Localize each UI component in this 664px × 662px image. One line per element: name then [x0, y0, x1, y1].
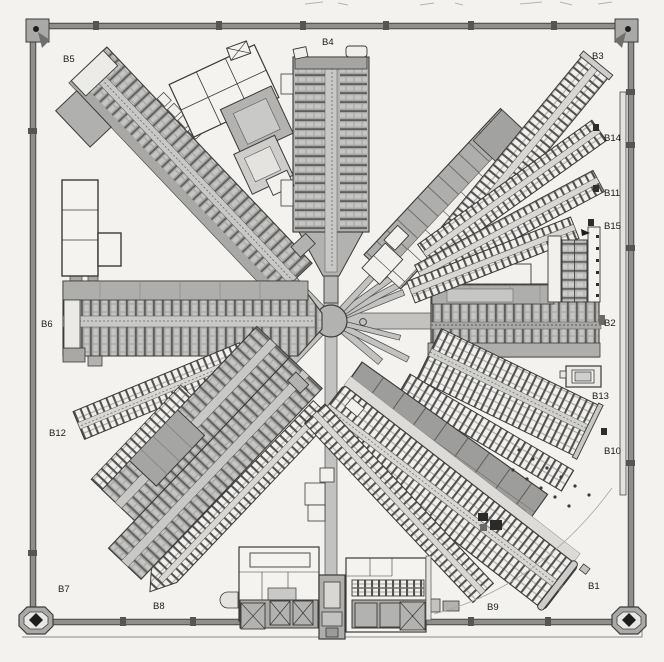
svg-text:B11: B11 — [604, 188, 620, 199]
svg-text:B8: B8 — [153, 601, 165, 612]
svg-text:B2: B2 — [604, 318, 616, 329]
svg-text:B12: B12 — [49, 428, 66, 439]
svg-text:B5: B5 — [63, 54, 75, 65]
svg-text:B6: B6 — [41, 319, 53, 330]
svg-text:B15: B15 — [604, 221, 621, 232]
svg-text:B1: B1 — [588, 581, 600, 592]
svg-text:B4: B4 — [322, 37, 334, 48]
svg-text:B13: B13 — [592, 391, 609, 402]
svg-text:B14: B14 — [604, 133, 621, 144]
svg-text:B7: B7 — [58, 584, 70, 595]
svg-text:B10: B10 — [604, 446, 621, 457]
svg-text:B9: B9 — [487, 602, 499, 613]
svg-text:B3: B3 — [592, 51, 604, 62]
